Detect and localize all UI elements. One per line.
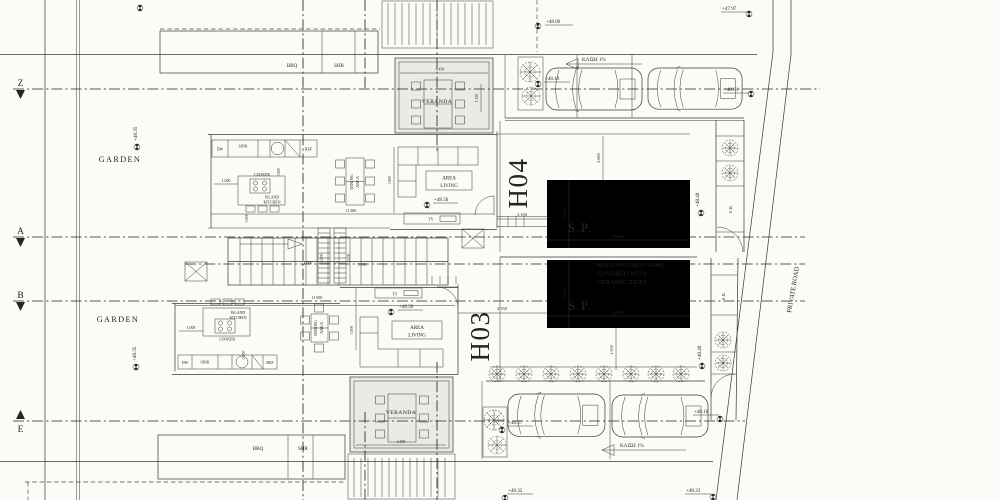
dim-deck: 3.550 (497, 306, 508, 311)
axis-label-a: A (17, 227, 24, 237)
dim-house-width: 11.690 (312, 296, 323, 300)
living-label-2: LIVING (408, 333, 426, 339)
shrub-icon (543, 366, 559, 382)
level-4835-lower: +48.35 (132, 346, 138, 361)
house-h04-label: H04 (503, 158, 533, 209)
dining-label-1: DINING (349, 173, 354, 189)
dim-island-w: 0.900 (245, 214, 249, 223)
appliance-dw-label: DW (182, 361, 189, 365)
appliance-sink-label: SINK (200, 361, 209, 365)
shrub-icon (516, 366, 532, 382)
slope-note: ΚΛΙΣΗ 1% (620, 443, 645, 449)
dim-stair-run: 5.180 (358, 263, 367, 267)
planter-box (518, 57, 543, 110)
shrub-icon (673, 366, 689, 382)
outbuilding-h04: BBQ SHR (160, 31, 378, 73)
dining-label-2: AREA (355, 175, 360, 188)
island-label-2: KITCHEN (263, 201, 280, 205)
shrub-row (489, 366, 689, 382)
axis-arrow-z-icon (16, 90, 25, 99)
private-road: PRIVATE ROAD (716, 0, 801, 500)
outbuilding-h03: BBQ SHR (158, 435, 345, 479)
veranda-label: VERANDA (386, 410, 417, 416)
tree-icon (520, 62, 540, 82)
shrub-icon (715, 332, 731, 348)
spot-elevation-marker (136, 4, 144, 12)
garden-label-lower: GARDEN (97, 315, 140, 324)
dim-living: 3.900 (388, 176, 392, 185)
spot-elevation-marker (747, 90, 755, 98)
dim-veranda: 4.450 (436, 68, 445, 72)
pergola (348, 454, 455, 499)
axis-label-b: B (17, 291, 23, 301)
island-label-1: ISLAND (231, 311, 245, 315)
spot-elevation-marker (698, 362, 706, 370)
car-icon (508, 392, 605, 438)
wall-note-line1: WALL H=2.0M (+50.40) (597, 262, 664, 269)
private-road-label: PRIVATE ROAD (786, 266, 801, 313)
appliance-sink-label: SINK (238, 145, 247, 149)
wall-note-line2: COVERED WITH (597, 271, 647, 278)
door-arc (475, 196, 494, 215)
dim-veranda: 4.450 (397, 440, 406, 444)
level-4840-lower: +48.40 (697, 345, 703, 360)
axis-arrow-b-icon (16, 302, 25, 311)
house-h03: ISLAND KITCHEN COOKER 1.000 0.900 DW SIN… (172, 285, 458, 375)
living-label-1: AREA (442, 176, 456, 182)
door-arc (437, 287, 458, 308)
dim-island: 1.000 (187, 326, 196, 330)
house-h03-label: H03 (465, 311, 495, 362)
level-4832: +48.32 (508, 488, 523, 494)
dining-label-1: DINING (313, 319, 318, 335)
dim-stair-w: 2.000 (347, 254, 351, 263)
right-service-strip-upper: E.R. (716, 120, 744, 252)
upper-driveway: ΚΛΙΣΗ 1% (505, 55, 742, 118)
island-label-2: KITCHEN (229, 316, 246, 320)
car-icon (612, 393, 708, 439)
shrub-icon (570, 366, 586, 382)
appliance-dw-label: DW (217, 148, 224, 152)
shrub-icon (722, 140, 738, 156)
axis-label-e: E (18, 425, 24, 435)
right-service-strip-lower: E.R. (711, 258, 738, 420)
spot-elevation-marker (697, 209, 705, 217)
level-4823: +48.23 (686, 488, 701, 494)
level-4797: +47.97 (722, 6, 737, 12)
dim-pool-offset: 1.500 (609, 344, 614, 355)
engine-room-label: E.R. (728, 205, 733, 213)
pool-label: S.P. (568, 220, 592, 235)
dim-pool-offset: 2.695 (596, 152, 601, 163)
level-4827: +48.27 (508, 420, 523, 426)
level-4806: +48.06 (546, 19, 561, 25)
spot-elevation-marker (534, 80, 542, 88)
shrub-icon (596, 366, 612, 382)
bbq-label: BBQ (287, 63, 298, 69)
dim-living: 3.900 (350, 326, 354, 335)
dim-counter: 0.900 (277, 168, 281, 177)
cooker-label: COOKER (254, 173, 270, 177)
dining-label-2: AREA (319, 321, 324, 334)
tree-icon (522, 87, 540, 105)
living-label-1: AREA (410, 325, 424, 331)
shrub-icon (648, 366, 664, 382)
living-label-2: LIVING (440, 183, 458, 189)
level-4810: +48.10 (545, 76, 560, 82)
shrub-icon (722, 165, 738, 181)
engine-room-label: E.R. (721, 292, 726, 300)
level-4801: +48.01 (724, 87, 739, 93)
level-4835-upper: +48.35 (133, 126, 139, 141)
pergola (382, 1, 493, 48)
dim-house-width: 11.380 (346, 209, 357, 213)
slope-note: ΚΛΙΣΗ 1% (582, 57, 607, 63)
shower-label: SHR (298, 446, 309, 452)
dim-pool-length: 6.000 (613, 310, 624, 315)
dim-pool-width: 3.000 (562, 208, 567, 219)
dim-stair-w: 2.000 (320, 254, 324, 263)
level-4850-upper: +48.50 (434, 197, 449, 203)
dim-veranda-side: 1.350 (475, 94, 479, 103)
tv-label: TV (428, 218, 433, 222)
level-4840-upper: +48.40 (695, 192, 701, 207)
level-4818: +48.18 (694, 409, 709, 415)
staircase: 1.000 2.000 2.000 5.180 (185, 228, 484, 285)
spot-elevation-marker (716, 415, 724, 423)
appliance-ref-label: REF (305, 148, 313, 152)
tv-label: TV (392, 293, 397, 297)
shrub-icon (715, 355, 731, 371)
floor-plan-svg: Z A B E PRIVATE ROAD ΚΛΙΣΗ 1% ΚΛΙ (0, 0, 1000, 500)
veranda-label: VERANDA (422, 99, 453, 105)
axis-markers: Z A B E (16, 79, 25, 435)
wall-note-line3: CERAMIC TILES (597, 279, 647, 286)
pool-label: S.P. (568, 298, 592, 313)
axis-label-z: Z (18, 79, 24, 89)
shower-label: SHR (334, 63, 345, 69)
entry-walkway (432, 217, 547, 285)
level-4850-lower: +48.50 (399, 304, 414, 310)
tree-icon (488, 436, 506, 454)
dim-pool-width: 3.000 (562, 288, 567, 299)
spot-elevation-marker (133, 143, 141, 151)
house-h04: DW SINK REF 0.900 COOKER ISLAND KITCHEN … (208, 132, 497, 230)
spot-elevation-marker (498, 426, 506, 434)
spot-elevation-marker (534, 22, 542, 30)
shrub-icon (623, 366, 639, 382)
cooker-label: COOKER (219, 338, 235, 342)
garden-label-upper: GARDEN (99, 155, 142, 164)
dim-pool-length: 6.000 (613, 234, 624, 239)
spot-elevation-marker (132, 363, 140, 371)
spot-elevation-marker (745, 10, 753, 18)
shrub-icon (489, 366, 505, 382)
axis-arrow-e-icon (16, 410, 25, 419)
spot-elevation-marker (387, 308, 395, 316)
dim-stair: 1.000 (304, 261, 313, 265)
island-label-1: ISLAND (265, 196, 279, 200)
appliance-ref-label: REF (266, 361, 274, 365)
dim-island: 1.000 (222, 179, 231, 183)
axis-arrow-a-icon (16, 238, 25, 247)
spot-elevation-marker (501, 494, 509, 500)
spot-elevation-marker (423, 201, 431, 209)
drawing-sheet: Z A B E PRIVATE ROAD ΚΛΙΣΗ 1% ΚΛΙ (0, 0, 1000, 500)
gate-arc (717, 227, 743, 252)
bbq-label: BBQ (253, 446, 264, 452)
